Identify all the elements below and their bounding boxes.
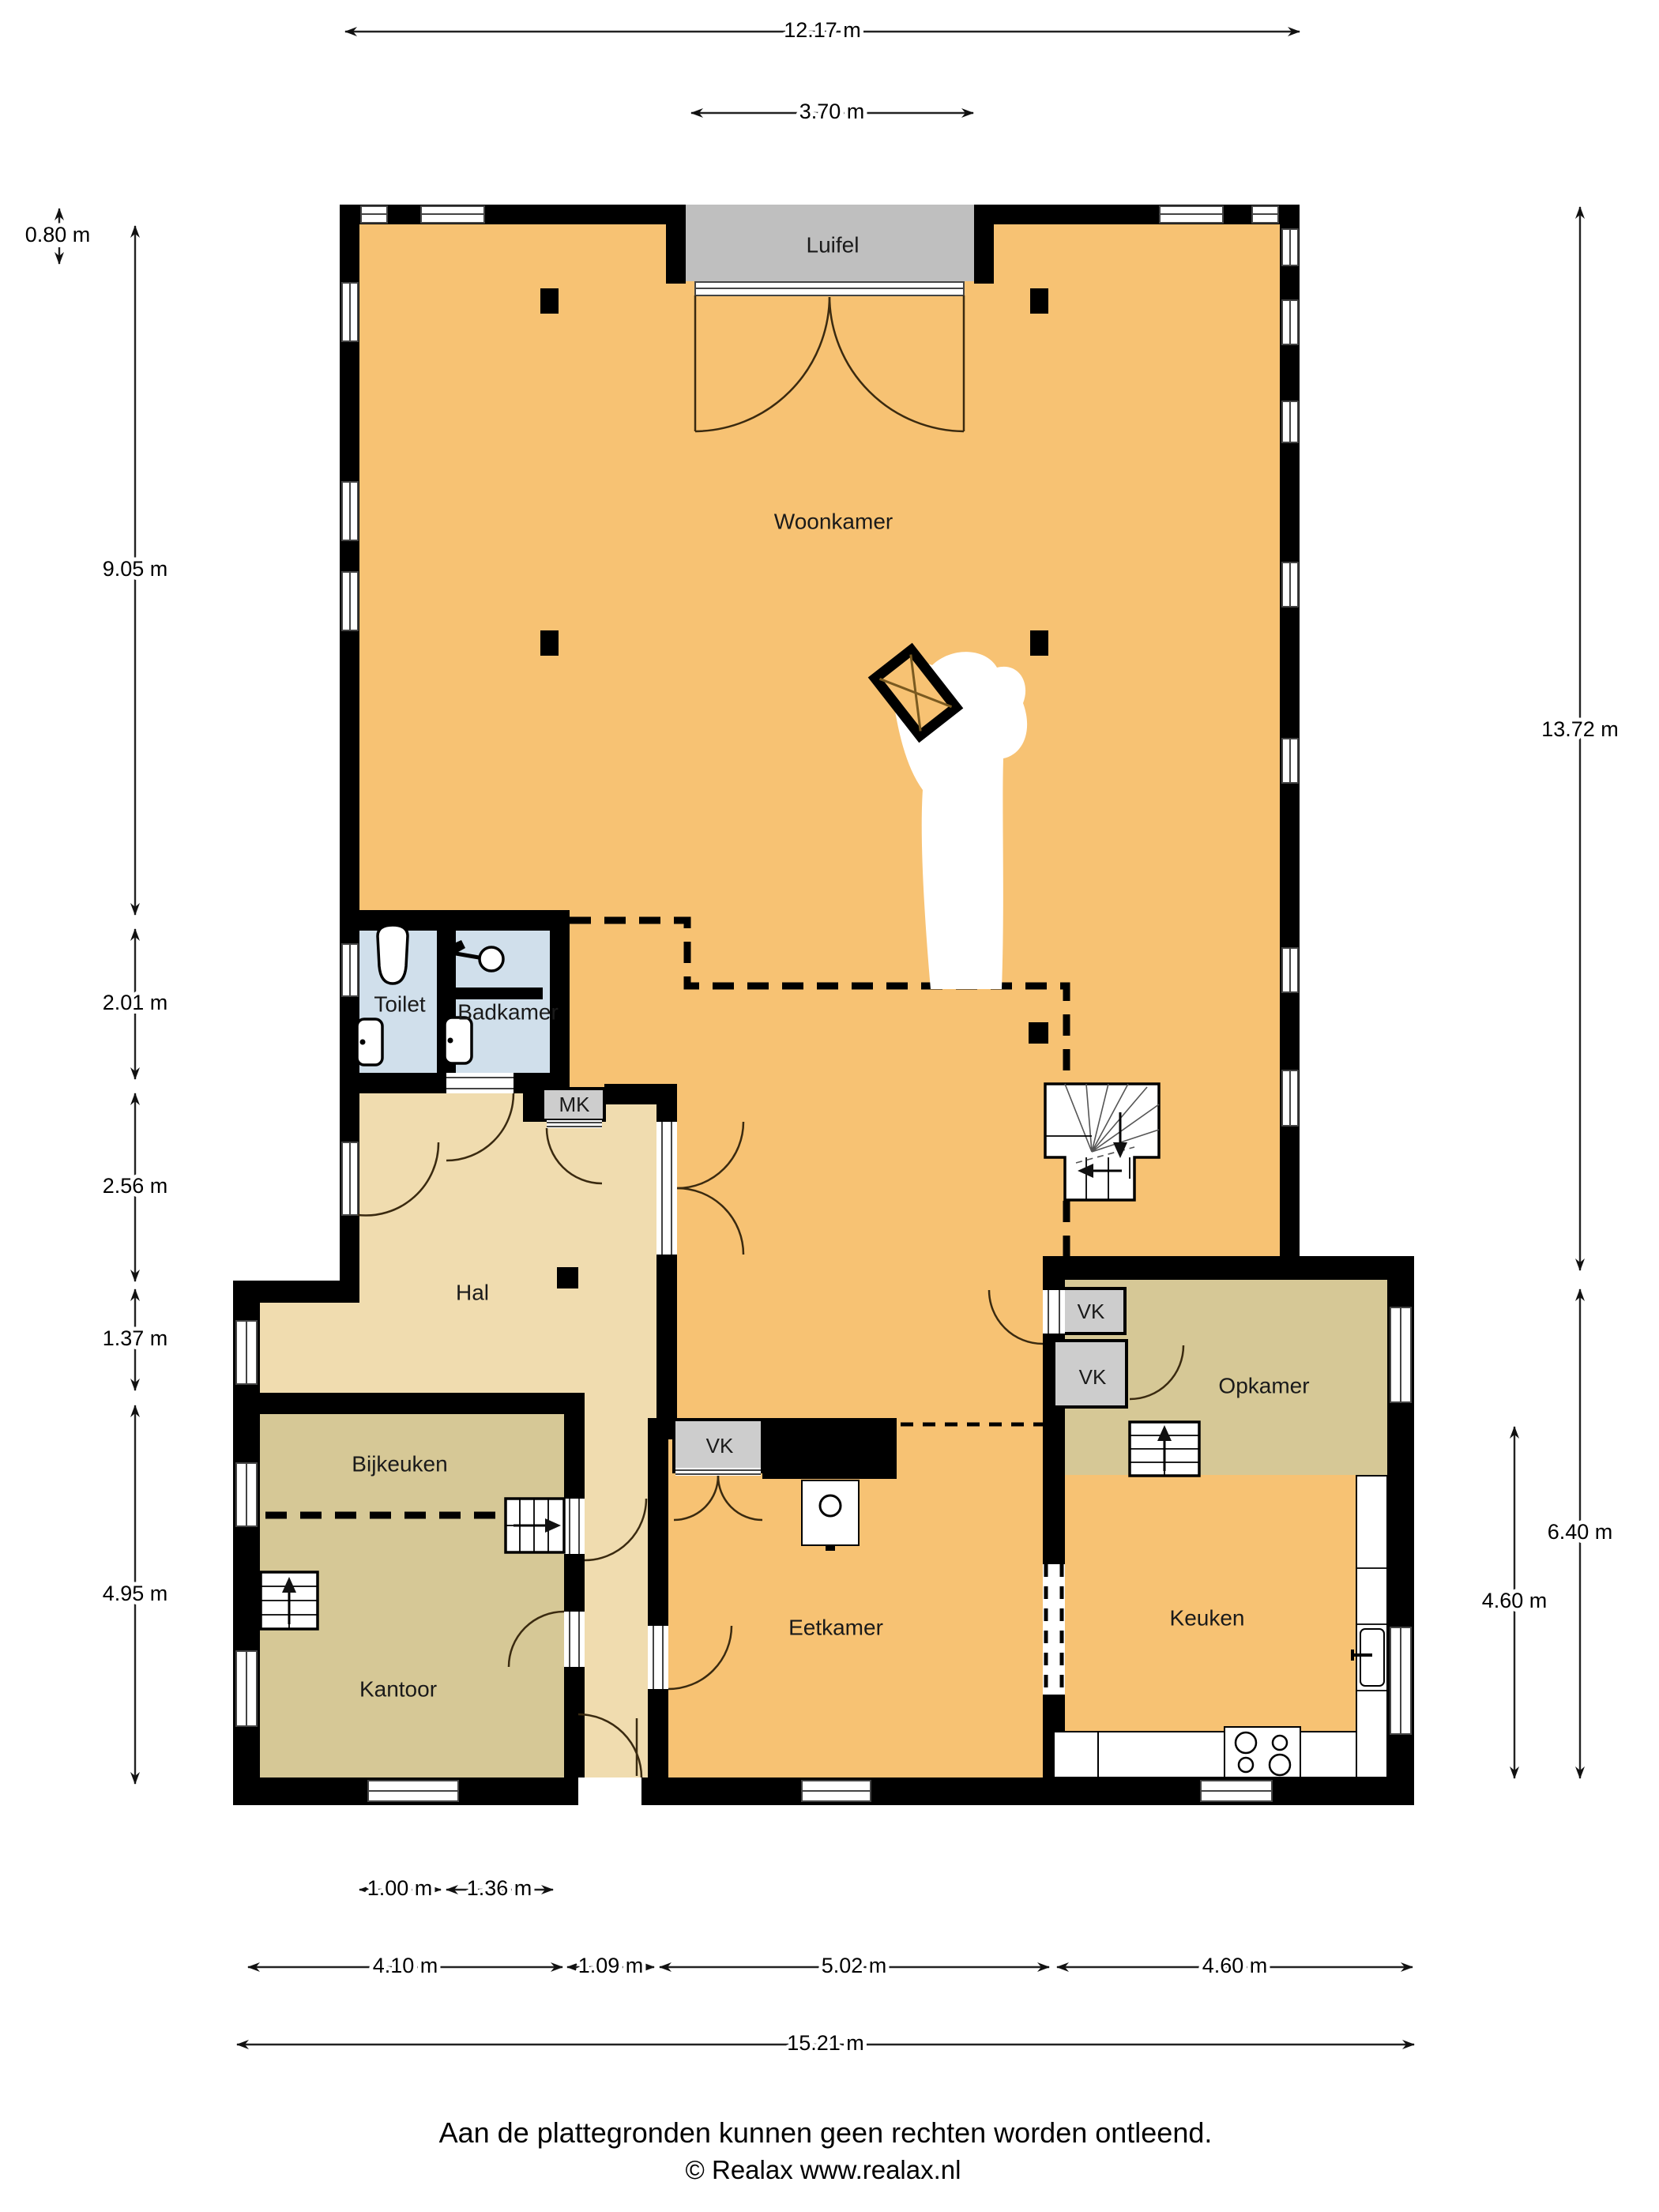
closet-label-vk-3: VK	[706, 1434, 734, 1458]
closet-label-mk: MK	[559, 1093, 591, 1116]
window	[236, 1321, 257, 1384]
bijkeuken-stair	[506, 1499, 564, 1552]
window	[368, 1781, 458, 1801]
dim-label-bottom-2: 1.09 m	[578, 1954, 644, 1977]
threshold-hal-woonkamer	[656, 1122, 677, 1255]
dim-label-left-4: 1.37 m	[103, 1326, 168, 1350]
window	[1282, 401, 1298, 442]
wall-opening-dashed	[1043, 1564, 1065, 1695]
dim-label-left-2: 2.01 m	[103, 991, 168, 1014]
window	[1282, 739, 1298, 783]
dim-label-top-total: 12.17 m	[784, 18, 861, 42]
room-corridor	[573, 1414, 660, 1787]
window	[1390, 1627, 1411, 1734]
threshold-vk1	[1043, 1290, 1065, 1334]
window	[236, 1463, 257, 1526]
dim-label-bottom-inner-1: 1.00 m	[367, 1876, 433, 1900]
window	[1160, 206, 1223, 223]
room-label-badkamer: Badkamer	[457, 999, 559, 1024]
dim-label-top-luifel: 3.70 m	[799, 100, 865, 123]
window	[342, 482, 358, 540]
toilet-fixture	[378, 925, 408, 984]
room-label-kantoor: Kantoor	[359, 1676, 437, 1701]
dim-label-left-3: 2.56 m	[103, 1174, 168, 1198]
french-door-sill	[695, 282, 964, 295]
opkamer-stair	[1130, 1422, 1199, 1476]
kantoor-stair	[261, 1572, 318, 1629]
window	[1390, 1307, 1411, 1402]
window	[1282, 948, 1298, 992]
room-label-bijkeuken: Bijkeuken	[352, 1451, 447, 1476]
window	[361, 206, 387, 223]
window	[342, 283, 358, 341]
threshold-kantoor	[564, 1612, 585, 1667]
room-label-toilet: Toilet	[374, 991, 426, 1016]
threshold-bijkeuken	[564, 1499, 585, 1554]
window	[1282, 562, 1298, 607]
dim-label-left-5: 4.95 m	[103, 1582, 168, 1605]
window	[1282, 229, 1298, 265]
sink-badkamer	[445, 1018, 472, 1063]
window	[1282, 1070, 1298, 1126]
window	[1252, 206, 1278, 223]
dim-label-left-1: 9.05 m	[103, 557, 168, 581]
window	[1282, 300, 1298, 344]
dim-label-left-offset: 0.80 m	[25, 223, 91, 246]
dim-left-offset: 0.80 m	[25, 209, 91, 264]
dim-label-right-1: 13.72 m	[1541, 717, 1619, 741]
closet-label-vk-2: VK	[1079, 1365, 1107, 1389]
window	[236, 1651, 257, 1726]
stove-eetkamer	[802, 1480, 859, 1551]
window	[421, 206, 484, 223]
room-label-keuken: Keuken	[1170, 1605, 1245, 1630]
dim-label-bottom-4: 4.60 m	[1202, 1954, 1268, 1977]
window	[342, 572, 358, 630]
threshold-eetkamer	[648, 1626, 668, 1689]
footer: Aan de plattegronden kunnen geen rechten…	[439, 2116, 1213, 2184]
window-door-glass	[342, 1142, 358, 1215]
dim-label-right-3: 4.60 m	[1482, 1589, 1548, 1612]
dim-label-right-2: 6.40 m	[1548, 1520, 1613, 1544]
closet-label-vk-1: VK	[1078, 1300, 1105, 1323]
dim-label-bottom-3: 5.02 m	[822, 1954, 887, 1977]
window	[342, 944, 358, 996]
room-label-eetkamer: Eetkamer	[788, 1615, 883, 1639]
front-door-opening	[578, 1777, 641, 1805]
footer-copyright: © Realax www.realax.nl	[686, 2155, 961, 2184]
room-label-hal: Hal	[456, 1280, 489, 1304]
room-label-opkamer: Opkamer	[1218, 1373, 1309, 1398]
room-label-woonkamer: Woonkamer	[774, 509, 893, 533]
window	[1201, 1781, 1272, 1801]
dim-label-bottom-inner-2: 1.36 m	[467, 1876, 532, 1900]
dim-label-bottom-1: 4.10 m	[373, 1954, 438, 1977]
dim-label-bottom-total: 15.21 m	[787, 2031, 864, 2055]
room-label-luifel: Luifel	[807, 232, 860, 257]
kitchen-stove	[1224, 1727, 1300, 1777]
window	[802, 1781, 871, 1801]
footer-disclaimer: Aan de plattegronden kunnen geen rechten…	[439, 2116, 1213, 2149]
sink-toilet	[357, 1019, 382, 1065]
threshold-badkamer	[446, 1073, 513, 1093]
floorplan-canvas: 12.17 m 3.70 m 0.80 m 9.05 m 2.01 m 2.56…	[0, 0, 1659, 2212]
